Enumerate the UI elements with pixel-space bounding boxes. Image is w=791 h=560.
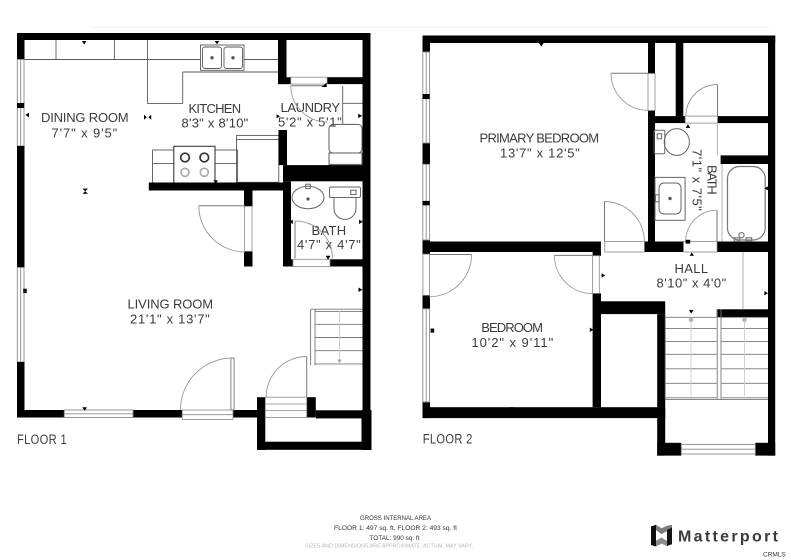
svg-text:FLOOR 1: 497 sq. ft, FLOOR 2:: FLOOR 1: 497 sq. ft, FLOOR 2: 493 sq. ft (334, 525, 457, 532)
svg-text:LAUNDRY: LAUNDRY (281, 100, 341, 115)
svg-text:8'10" x 4'0": 8'10" x 4'0" (657, 276, 727, 291)
svg-text:FLOOR 2: FLOOR 2 (423, 432, 473, 447)
svg-text:PRIMARY BEDROOM: PRIMARY BEDROOM (480, 131, 600, 146)
svg-text:SIZES AND DIMENSIONS ARE APPRO: SIZES AND DIMENSIONS ARE APPROXIMATE, AC… (305, 544, 473, 550)
svg-text:LIVING ROOM: LIVING ROOM (128, 296, 214, 311)
svg-text:GROSS INTERNAL AREA: GROSS INTERNAL AREA (360, 515, 432, 522)
svg-text:BEDROOM: BEDROOM (481, 320, 543, 335)
svg-text:7'7" x 9'5": 7'7" x 9'5" (52, 126, 118, 141)
svg-text:TOTAL: 990 sq. ft: TOTAL: 990 sq. ft (370, 535, 420, 542)
svg-text:DINING ROOM: DINING ROOM (41, 110, 129, 125)
svg-text:4'7" x 4'7": 4'7" x 4'7" (297, 237, 361, 252)
svg-text:13'7" x 12'5": 13'7" x 12'5" (500, 146, 580, 161)
svg-text:5'2" x 5'1": 5'2" x 5'1" (278, 115, 342, 130)
svg-text:7'1" x 7'5": 7'1" x 7'5" (690, 149, 705, 211)
svg-text:HALL: HALL (675, 261, 709, 276)
svg-text:FLOOR 1: FLOOR 1 (17, 432, 67, 447)
svg-text:KITCHEN: KITCHEN (189, 101, 242, 116)
svg-text:8'3" x 8'10": 8'3" x 8'10" (182, 116, 249, 131)
svg-text:CRMLS: CRMLS (763, 552, 786, 559)
svg-text:BATH: BATH (312, 223, 347, 238)
svg-text:BATH: BATH (705, 165, 720, 195)
svg-text:10'2" x 9'11": 10'2" x 9'11" (471, 335, 553, 350)
svg-text:21'1" x 13'7": 21'1" x 13'7" (130, 311, 210, 326)
svg-text:Matterport: Matterport (678, 529, 779, 546)
